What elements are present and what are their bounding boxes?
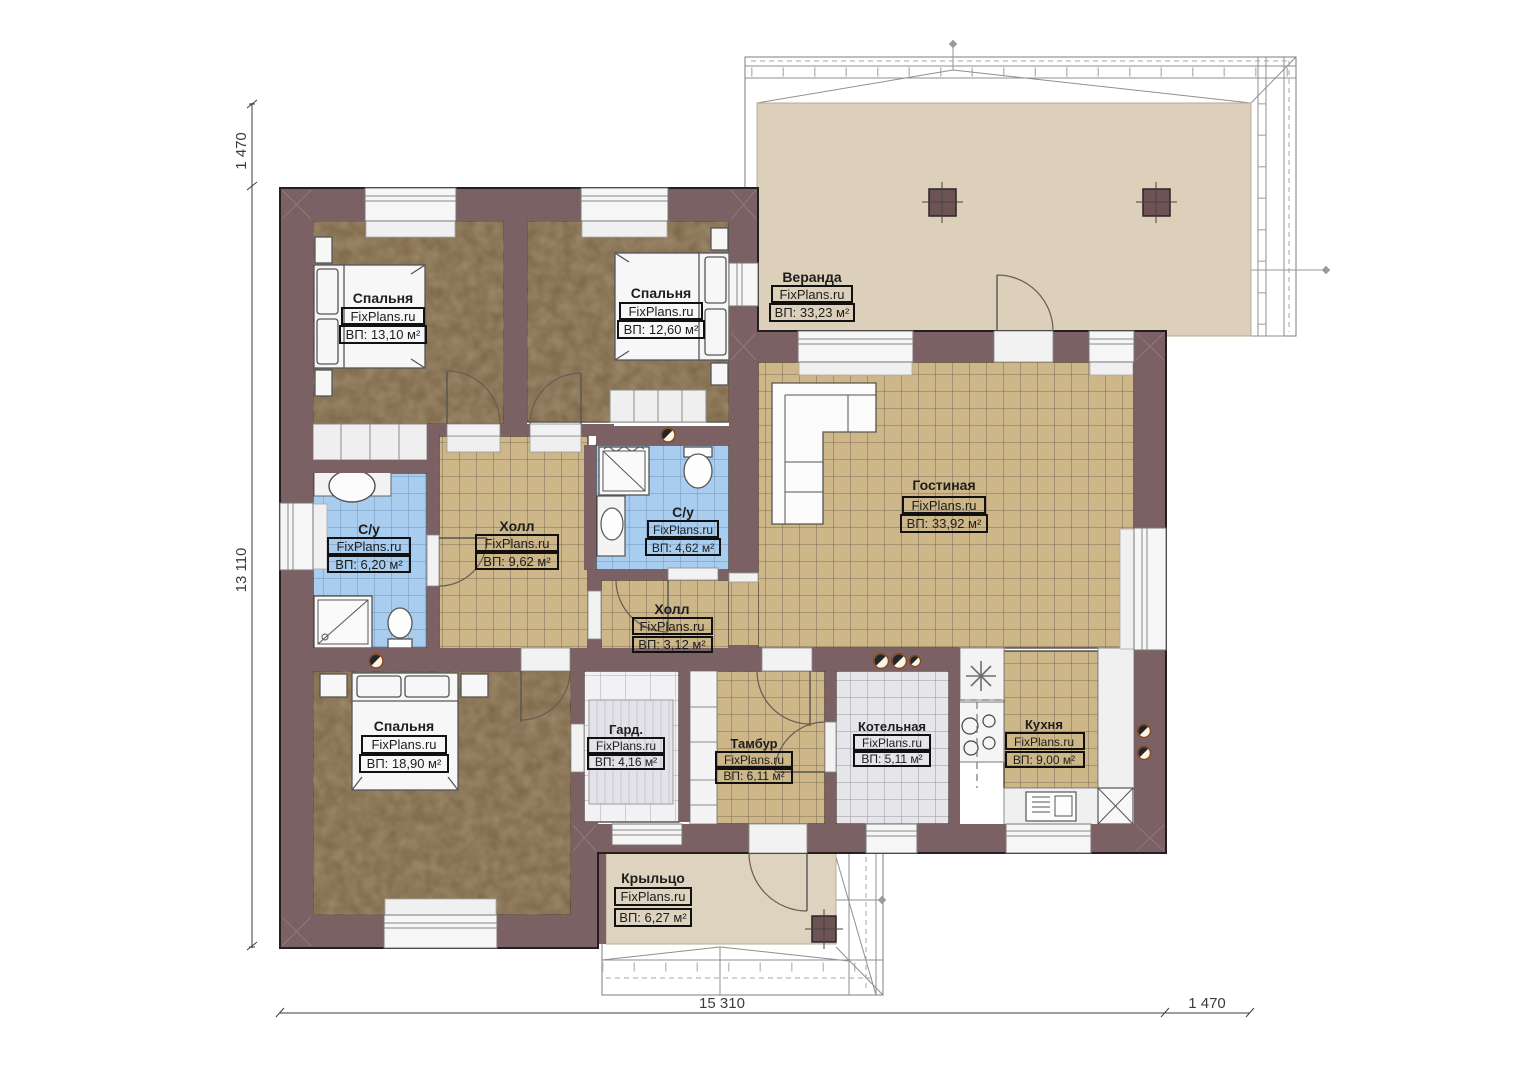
svg-text:Гард.: Гард.: [609, 722, 643, 737]
svg-text:Холл: Холл: [499, 518, 534, 534]
svg-text:С/у: С/у: [358, 521, 380, 537]
svg-text:ВП: 12,60 м²: ВП: 12,60 м²: [624, 322, 699, 337]
svg-text:Кухня: Кухня: [1025, 717, 1063, 732]
svg-text:FixPlans.ru: FixPlans.ru: [371, 737, 436, 752]
svg-text:FixPlans.ru: FixPlans.ru: [639, 619, 704, 634]
svg-text:ВП: 33,23 м²: ВП: 33,23 м²: [775, 305, 850, 320]
svg-text:FixPlans.ru: FixPlans.ru: [724, 753, 784, 767]
svg-text:FixPlans.ru: FixPlans.ru: [350, 309, 415, 324]
svg-text:ВП: 18,90 м²: ВП: 18,90 м²: [367, 756, 442, 771]
svg-text:FixPlans.ru: FixPlans.ru: [1014, 735, 1074, 749]
svg-text:FixPlans.ru: FixPlans.ru: [596, 739, 656, 753]
svg-text:1 470: 1 470: [233, 132, 250, 170]
svg-text:FixPlans.ru: FixPlans.ru: [628, 304, 693, 319]
svg-text:Спальня: Спальня: [374, 718, 434, 734]
svg-text:ВП: 5,11 м²: ВП: 5,11 м²: [861, 752, 922, 766]
svg-text:15 310: 15 310: [699, 995, 745, 1012]
svg-text:FixPlans.ru: FixPlans.ru: [336, 539, 401, 554]
svg-text:ВП: 6,27 м²: ВП: 6,27 м²: [619, 910, 687, 925]
svg-text:Спальня: Спальня: [631, 285, 691, 301]
svg-text:ВП: 4,16 м²: ВП: 4,16 м²: [595, 755, 657, 769]
svg-text:FixPlans.ru: FixPlans.ru: [620, 889, 685, 904]
svg-text:ВП: 13,10 м²: ВП: 13,10 м²: [346, 327, 421, 342]
svg-text:ВП: 9,00 м²: ВП: 9,00 м²: [1013, 753, 1075, 767]
svg-text:ВП: 4,62 м²: ВП: 4,62 м²: [652, 541, 714, 555]
svg-text:ВП: 6,11 м²: ВП: 6,11 м²: [723, 769, 784, 783]
svg-text:13 110: 13 110: [233, 548, 250, 593]
svg-text:FixPlans.ru: FixPlans.ru: [862, 736, 922, 750]
svg-text:Гостиная: Гостиная: [912, 477, 975, 493]
svg-text:Спальня: Спальня: [353, 290, 413, 306]
svg-text:Веранда: Веранда: [782, 269, 842, 285]
svg-text:ВП: 6,20 м²: ВП: 6,20 м²: [335, 557, 403, 572]
svg-text:ВП: 3,12 м²: ВП: 3,12 м²: [638, 637, 706, 652]
svg-text:Крыльцо: Крыльцо: [621, 870, 685, 886]
svg-text:С/у: С/у: [672, 504, 694, 520]
svg-text:FixPlans.ru: FixPlans.ru: [779, 287, 844, 302]
svg-text:ВП: 33,92 м²: ВП: 33,92 м²: [907, 516, 982, 531]
svg-text:FixPlans.ru: FixPlans.ru: [911, 498, 976, 513]
svg-text:Котельная: Котельная: [858, 719, 926, 734]
svg-text:ВП: 9,62 м²: ВП: 9,62 м²: [483, 554, 551, 569]
svg-text:Холл: Холл: [654, 601, 689, 617]
svg-text:FixPlans.ru: FixPlans.ru: [653, 523, 713, 537]
svg-text:FixPlans.ru: FixPlans.ru: [484, 536, 549, 551]
svg-text:Тамбур: Тамбур: [730, 736, 777, 751]
svg-text:1 470: 1 470: [1188, 995, 1226, 1012]
